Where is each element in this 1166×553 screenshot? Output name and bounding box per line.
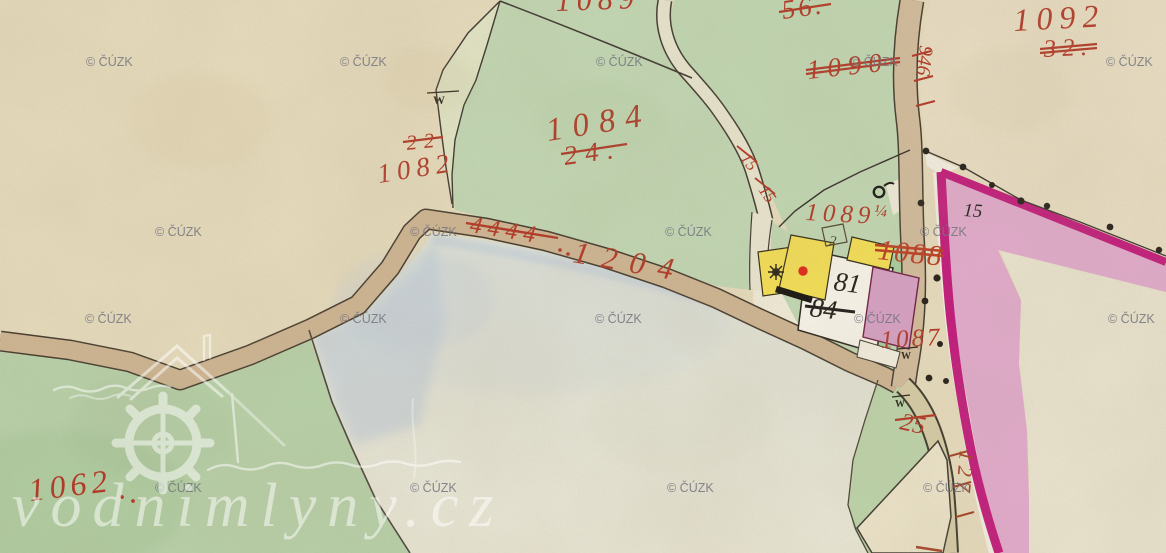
svg-text:© ČÚZK: © ČÚZK bbox=[595, 311, 642, 326]
svg-text:© ČÚZK: © ČÚZK bbox=[340, 54, 387, 69]
svg-text:© ČÚZK: © ČÚZK bbox=[854, 311, 901, 326]
svg-text:© ČÚZK: © ČÚZK bbox=[665, 224, 712, 239]
svg-text:© ČÚZK: © ČÚZK bbox=[923, 480, 970, 495]
svg-text:© ČÚZK: © ČÚZK bbox=[86, 54, 133, 69]
svg-text:© ČÚZK: © ČÚZK bbox=[1106, 54, 1153, 69]
svg-text:© ČÚZK: © ČÚZK bbox=[851, 54, 898, 69]
svg-text:© ČÚZK: © ČÚZK bbox=[340, 311, 387, 326]
svg-text:© ČÚZK: © ČÚZK bbox=[410, 224, 457, 239]
svg-text:© ČÚZK: © ČÚZK bbox=[920, 224, 967, 239]
svg-text:vodnimlyny.cz: vodnimlyny.cz bbox=[12, 472, 505, 540]
svg-text:© ČÚZK: © ČÚZK bbox=[85, 311, 132, 326]
svg-text:© ČÚZK: © ČÚZK bbox=[596, 54, 643, 69]
svg-text:© ČÚZK: © ČÚZK bbox=[667, 480, 714, 495]
svg-text:© ČÚZK: © ČÚZK bbox=[1108, 311, 1155, 326]
svg-text:© ČÚZK: © ČÚZK bbox=[155, 224, 202, 239]
